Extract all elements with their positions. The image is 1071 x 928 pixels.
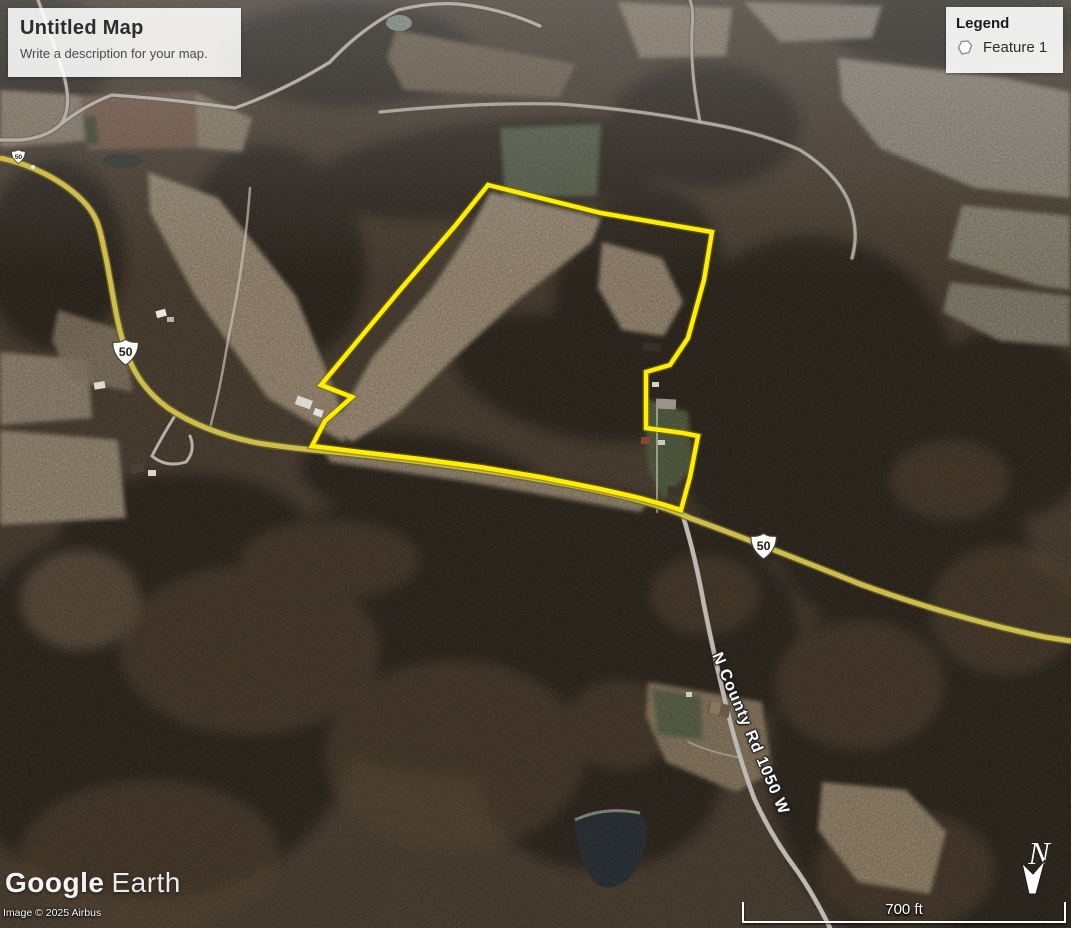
scale-bar: 700 ft (742, 902, 1066, 923)
polygon-icon (956, 40, 974, 56)
google-earth-logo: GoogleEarth (5, 867, 181, 899)
route-shield-label: 50 (15, 154, 23, 161)
logo-google: Google (5, 867, 104, 898)
imagery-copyright: Image © 2025 Airbus (3, 907, 101, 919)
map-title-card: Untitled Map Write a description for you… (8, 8, 241, 77)
legend-item-feature-1[interactable]: Feature 1 (956, 39, 1053, 56)
map-description: Write a description for your map. (20, 46, 229, 61)
google-earth-viewport: 50 50 50 N Untitled Map Write a descript… (0, 0, 1071, 928)
legend-title: Legend (956, 15, 1053, 32)
route-shield-label: 50 (757, 539, 771, 553)
north-label: N (1027, 835, 1051, 871)
atmosphere-haze (0, 0, 1071, 928)
legend-panel: Legend Feature 1 (946, 7, 1063, 73)
legend-item-label: Feature 1 (983, 39, 1047, 56)
scale-bar-label: 700 ft (744, 901, 1064, 918)
aerial-imagery: 50 50 50 N (0, 0, 1071, 928)
logo-earth: Earth (111, 867, 180, 898)
route-shield-label: 50 (119, 345, 133, 359)
map-title: Untitled Map (20, 17, 229, 40)
